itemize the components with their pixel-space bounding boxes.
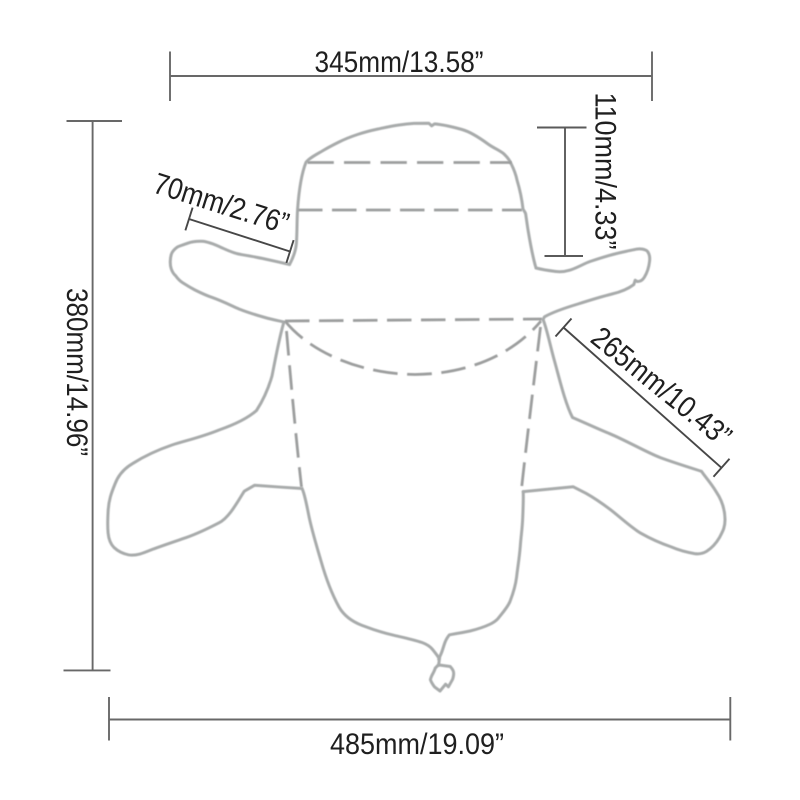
svg-text:485mm/19.09”: 485mm/19.09”: [330, 728, 504, 761]
svg-text:345mm/13.58”: 345mm/13.58”: [315, 46, 484, 79]
svg-text:110mm/4.33”: 110mm/4.33”: [589, 93, 622, 250]
svg-text:380mm/14.96”: 380mm/14.96”: [60, 288, 93, 456]
